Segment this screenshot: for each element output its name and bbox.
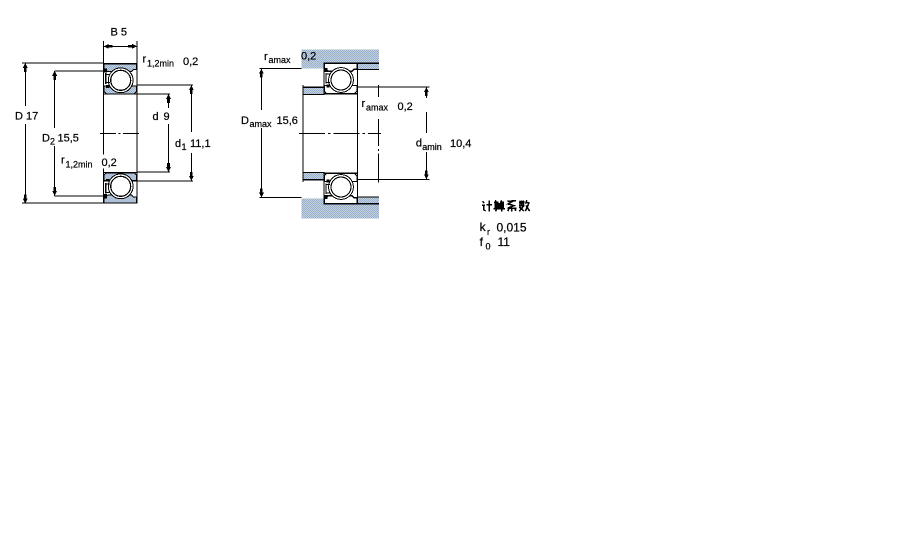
svg-text:amax: amax <box>269 55 292 65</box>
svg-text:r: r <box>264 51 268 63</box>
svg-text:1,2min: 1,2min <box>66 160 93 170</box>
svg-text:2: 2 <box>50 137 55 147</box>
svg-text:15,6: 15,6 <box>277 115 298 127</box>
svg-text:0,2: 0,2 <box>301 51 316 63</box>
svg-text:0: 0 <box>486 242 491 252</box>
svg-text:d: d <box>175 138 181 150</box>
svg-text:r: r <box>362 98 366 110</box>
svg-text:0,015: 0,015 <box>497 221 527 235</box>
svg-text:D: D <box>241 115 249 127</box>
svg-text:amin: amin <box>422 142 442 152</box>
svg-text:d: d <box>153 111 159 123</box>
svg-text:r: r <box>61 155 65 167</box>
svg-text:9: 9 <box>164 111 170 123</box>
svg-text:10,4: 10,4 <box>450 138 471 150</box>
svg-text:amax: amax <box>366 103 389 113</box>
svg-text:D: D <box>42 133 50 145</box>
svg-text:r: r <box>143 54 147 66</box>
svg-text:0,2: 0,2 <box>398 101 413 113</box>
svg-text:0,2: 0,2 <box>183 56 198 68</box>
svg-text:1: 1 <box>182 142 187 152</box>
svg-text:0,2: 0,2 <box>102 157 117 169</box>
svg-text:1,2min: 1,2min <box>147 59 174 69</box>
svg-text:D 17: D 17 <box>15 111 38 123</box>
svg-text:amax: amax <box>250 119 273 129</box>
svg-text:k: k <box>480 220 487 234</box>
svg-text:d: d <box>416 138 422 150</box>
svg-text:r: r <box>487 227 490 237</box>
svg-text:11: 11 <box>498 235 511 249</box>
svg-text:B 5: B 5 <box>111 27 128 39</box>
svg-text:15,5: 15,5 <box>58 133 79 145</box>
svg-text:11,1: 11,1 <box>190 138 211 150</box>
